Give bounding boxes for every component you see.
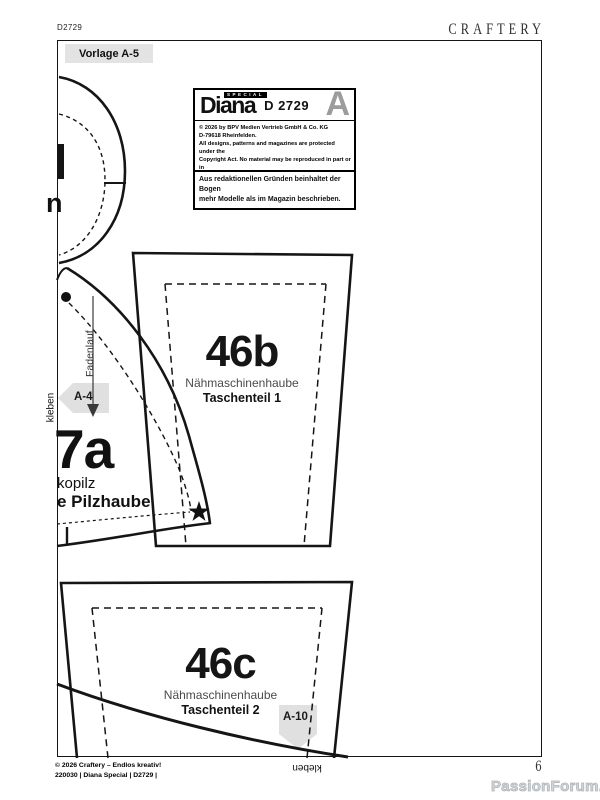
page-number: 6: [535, 759, 542, 775]
partial-letter: n: [46, 190, 63, 217]
diana-special-band: SPECIAL: [224, 92, 267, 99]
piece-7a-name-partial: kopilz: [57, 475, 95, 492]
diana-logo: Diana SPECIAL: [200, 94, 255, 117]
glue-edge-label-bottom: kleben: [286, 762, 328, 773]
document-code: D2729: [57, 23, 82, 32]
footer-line: 220030 | Diana Special | D2729 |: [55, 771, 161, 781]
piece-number: 46b: [152, 330, 332, 374]
a4-marker-label: A-4: [74, 391, 93, 403]
model-code: D 2729: [264, 98, 309, 113]
sheet-letter: A: [325, 91, 350, 118]
copyright-line: D-79618 Rheinfelden.: [199, 132, 351, 140]
piece-name: Nähmaschinenhaube: [128, 688, 313, 702]
editorial-note-line: mehr Modelle als im Magazin beschrieben.: [199, 195, 350, 205]
piece-part: Taschenteil 1: [152, 391, 332, 405]
a10-marker-label: A-10: [283, 711, 308, 723]
editorial-note-box: Aus redaktionellen Gründen beinhaltet de…: [193, 170, 356, 210]
glue-edge-label-left: kleben: [46, 385, 57, 431]
diana-logo-row: Diana SPECIAL D 2729 A: [195, 90, 354, 121]
vorlage-tag: Vorlage A-5: [65, 44, 153, 63]
watermark: PassionForum.ru: [491, 778, 600, 795]
piece-7a-number: 7a: [54, 422, 113, 477]
piece-7a-part-partial: e Pilzhaube: [57, 492, 151, 512]
piece-46c-label: 46c Nähmaschinenhaube Taschenteil 2: [128, 642, 313, 717]
piece-number: 46c: [128, 642, 313, 686]
copyright-line: All designs, patterns and magazines are …: [199, 140, 351, 156]
footer-line: © 2026 Craftery – Endlos kreativ!: [55, 761, 161, 771]
piece-46b-label: 46b Nähmaschinenhaube Taschenteil 1: [152, 330, 332, 405]
craftery-logo: CRAFTERY: [448, 20, 545, 39]
footer-imprint: © 2026 Craftery – Endlos kreativ! 220030…: [55, 761, 161, 781]
piece-name: Nähmaschinenhaube: [152, 376, 332, 390]
editorial-note-line: Aus redaktionellen Gründen beinhaltet de…: [199, 175, 350, 195]
copyright-line: © 2026 by BPV Medien Vertrieb GmbH & Co.…: [199, 124, 351, 132]
